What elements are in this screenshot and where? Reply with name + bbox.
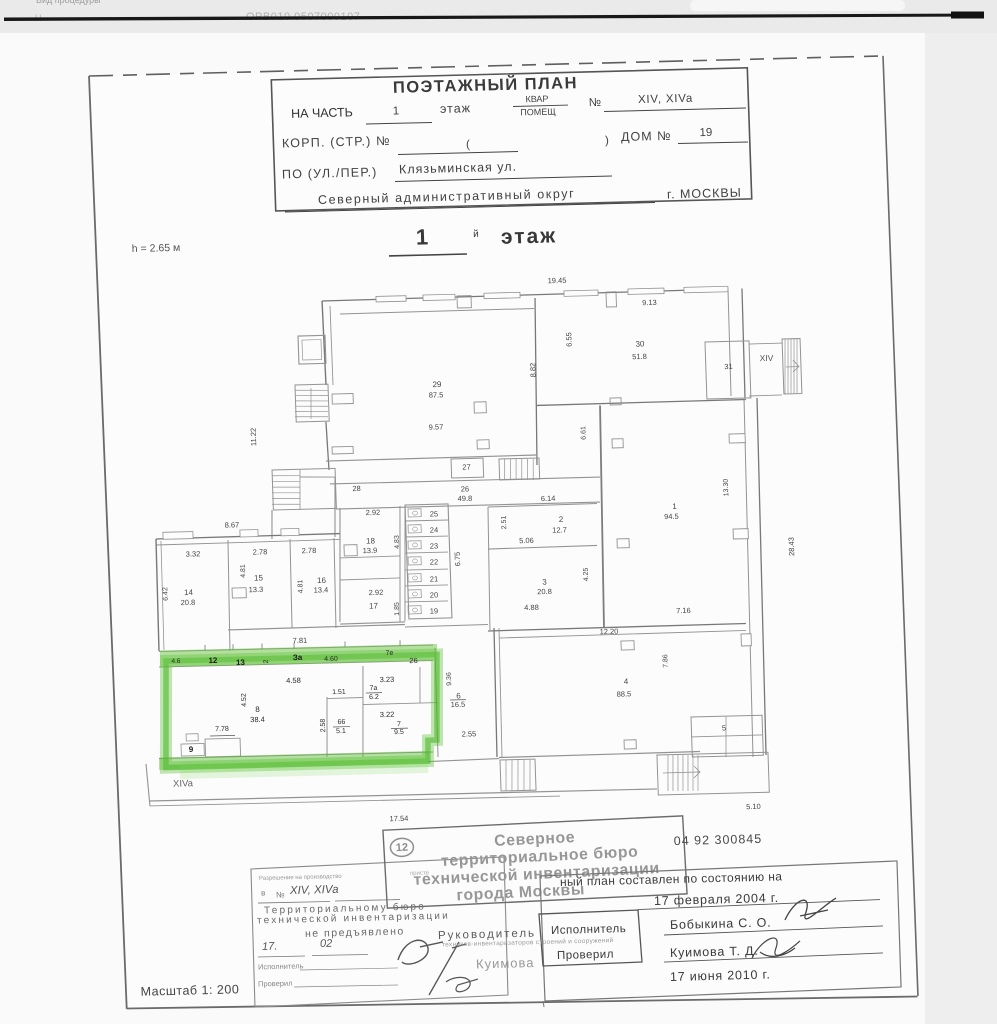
svg-text:4.25: 4.25 [583,567,590,581]
svg-text:20.8: 20.8 [537,587,552,596]
svg-text:9.36: 9.36 [446,672,453,686]
svg-text:19: 19 [430,606,439,615]
svg-text:94.5: 94.5 [664,512,679,521]
svg-text:87.5: 87.5 [429,390,444,399]
svg-text:й: й [473,229,479,240]
svg-text:этаж: этаж [501,224,558,248]
svg-text:5.1: 5.1 [336,728,346,735]
svg-text:20.8: 20.8 [181,598,196,607]
svg-text:12: 12 [208,656,218,665]
svg-text:4.81: 4.81 [297,579,304,593]
svg-text:ПО (УЛ./ПЕР.): ПО (УЛ./ПЕР.) [282,165,378,181]
svg-text:12.20: 12.20 [599,627,618,636]
svg-text:13.30: 13.30 [723,479,731,497]
svg-text:в: в [261,888,266,897]
svg-text:13.4: 13.4 [314,585,329,594]
svg-text:г. МОСКВЫ: г. МОСКВЫ [667,186,742,202]
svg-text:2.78: 2.78 [302,546,317,555]
svg-text:3.32: 3.32 [186,549,201,558]
svg-text:4.88: 4.88 [524,603,539,612]
svg-text:Масштаб 1: 200: Масштаб 1: 200 [140,982,239,998]
svg-text:66: 66 [337,719,345,726]
svg-text:XIVa: XIVa [173,778,194,790]
svg-text:6.42: 6.42 [162,587,169,601]
svg-text:26: 26 [409,656,418,665]
svg-text:27: 27 [462,462,471,471]
svg-text:13.9: 13.9 [363,546,378,555]
svg-text:6.61: 6.61 [580,426,587,440]
svg-text:Проверил: Проверил [557,949,614,962]
svg-text:НА ЧАСТЬ: НА ЧАСТЬ [291,105,353,121]
svg-text:13: 13 [236,658,246,667]
svg-text:Куимова: Куимова [476,955,535,971]
svg-text:2: 2 [263,659,270,663]
svg-text:5: 5 [722,723,726,732]
svg-text:7е: 7е [385,650,393,657]
svg-text:7.78: 7.78 [215,726,229,733]
svg-text:28: 28 [352,484,361,493]
svg-text:24: 24 [430,525,439,534]
svg-text:16.5: 16.5 [451,700,466,709]
svg-text:7.16: 7.16 [676,606,691,615]
svg-text:6.75: 6.75 [453,552,462,567]
svg-text:Исполнитель: Исполнитель [258,961,304,971]
svg-text:XIV, XIVa: XIV, XIVa [289,884,339,897]
svg-text:Бобыкина С. О.: Бобыкина С. О. [670,915,772,932]
svg-text:23: 23 [430,541,439,550]
svg-text:h = 2.65 м: h = 2.65 м [132,242,181,255]
svg-text:26: 26 [461,484,470,493]
svg-text:9.5: 9.5 [394,729,404,736]
svg-text:13.3: 13.3 [249,585,264,594]
svg-text:9.13: 9.13 [642,298,657,307]
svg-text:14: 14 [184,588,194,597]
svg-text:49.8: 49.8 [458,494,473,503]
svg-text:17.: 17. [262,941,278,953]
svg-text:21: 21 [430,574,439,583]
svg-text:51.8: 51.8 [632,352,647,361]
svg-text:17 июня 2010 г.: 17 июня 2010 г. [670,967,771,984]
svg-text:1.85: 1.85 [394,602,401,616]
svg-text:ПОМЕЩ: ПОМЕЩ [520,107,556,118]
svg-text:): ) [605,135,609,147]
svg-text:18: 18 [366,536,376,545]
svg-text:15: 15 [254,573,264,582]
svg-text:4.83: 4.83 [394,535,401,549]
svg-text:20: 20 [430,590,439,599]
svg-text:17: 17 [369,601,379,610]
svg-text:1: 1 [393,105,400,117]
svg-text:19.45: 19.45 [548,276,567,285]
svg-text:(: ( [466,139,470,151]
svg-text:4.60: 4.60 [324,656,338,663]
svg-text:XIV, XIVa: XIV, XIVa [638,93,694,106]
svg-text:7а: 7а [369,685,377,692]
svg-text:22: 22 [430,557,439,566]
svg-text:Вид процедуры: Вид процедуры [36,0,101,5]
svg-text:28.43: 28.43 [787,537,797,556]
svg-text:этаж: этаж [440,101,471,116]
svg-text:2.92: 2.92 [369,588,384,597]
svg-text:12: 12 [396,842,409,855]
svg-text:6.55: 6.55 [564,332,573,347]
svg-text:КОРП. (СТР.) №: КОРП. (СТР.) № [282,134,391,151]
svg-text:25: 25 [430,509,439,518]
svg-text:2.51: 2.51 [501,515,508,529]
svg-text:30: 30 [635,339,645,348]
svg-text:02: 02 [320,938,333,950]
svg-text:88.5: 88.5 [616,689,631,698]
svg-text:5.10: 5.10 [746,802,761,811]
svg-text:11.22: 11.22 [249,428,259,446]
svg-text:04 92 300845: 04 92 300845 [674,832,763,848]
svg-text:КВАР: КВАР [525,94,548,105]
svg-text:4.81: 4.81 [240,564,247,578]
svg-text:Проверил: Проверил [258,979,293,989]
svg-text:2.92: 2.92 [366,508,381,517]
svg-text:12.7: 12.7 [552,525,567,534]
svg-text:8.82: 8.82 [528,363,537,378]
svg-text:6.14: 6.14 [541,494,556,503]
svg-text:8.67: 8.67 [225,520,240,529]
svg-text:3: 3 [542,577,547,586]
svg-text:За: За [293,653,303,662]
svg-text:17.54: 17.54 [389,814,408,823]
svg-text:2.58: 2.58 [320,719,327,733]
svg-text:7.86: 7.86 [662,654,669,668]
svg-text:7.81: 7.81 [293,636,308,645]
svg-text:5.06: 5.06 [519,536,534,545]
svg-text:2.78: 2.78 [253,547,268,556]
svg-text:Куимова Т. Д.: Куимова Т. Д. [670,944,759,960]
svg-text:3.22: 3.22 [380,710,395,719]
svg-text:№: № [276,890,285,899]
svg-text:1: 1 [672,502,677,511]
svg-text:ДОМ №: ДОМ № [621,129,672,144]
svg-text:9.57: 9.57 [429,422,444,431]
svg-text:1: 1 [415,224,428,249]
svg-text:19: 19 [699,127,712,139]
svg-text:3.23: 3.23 [380,675,395,684]
svg-text:XIV: XIV [759,353,773,363]
svg-text:16: 16 [317,576,327,585]
svg-text:38.4: 38.4 [250,715,265,724]
svg-text:1.51: 1.51 [332,689,346,696]
svg-text:7: 7 [397,721,401,728]
svg-text:4.6: 4.6 [171,658,181,665]
svg-text:6.2: 6.2 [369,694,379,701]
svg-text:Клязьминская ул.: Клязьминская ул. [399,160,517,177]
svg-text:4.58: 4.58 [286,676,301,685]
svg-text:2.55: 2.55 [462,729,477,738]
svg-text:Исполнитель: Исполнитель [551,923,627,937]
svg-text:29: 29 [432,380,442,389]
svg-text:31: 31 [724,362,733,371]
svg-text:4.52: 4.52 [241,693,248,707]
svg-text:№: № [589,97,602,109]
